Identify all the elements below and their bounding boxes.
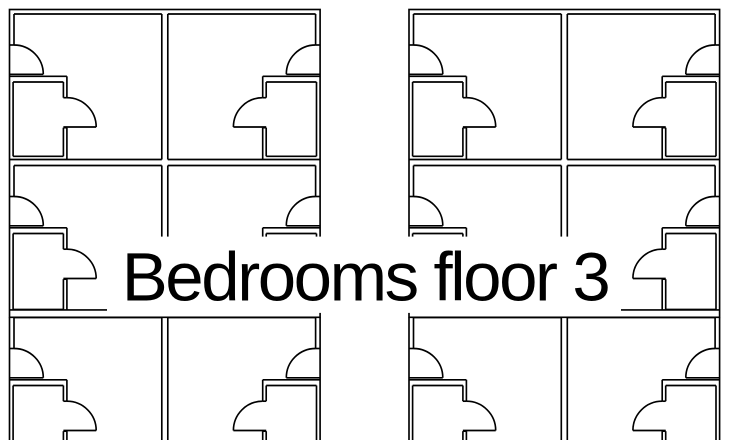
svg-text:Bedrooms floor 3: Bedrooms floor 3 [122, 239, 611, 316]
